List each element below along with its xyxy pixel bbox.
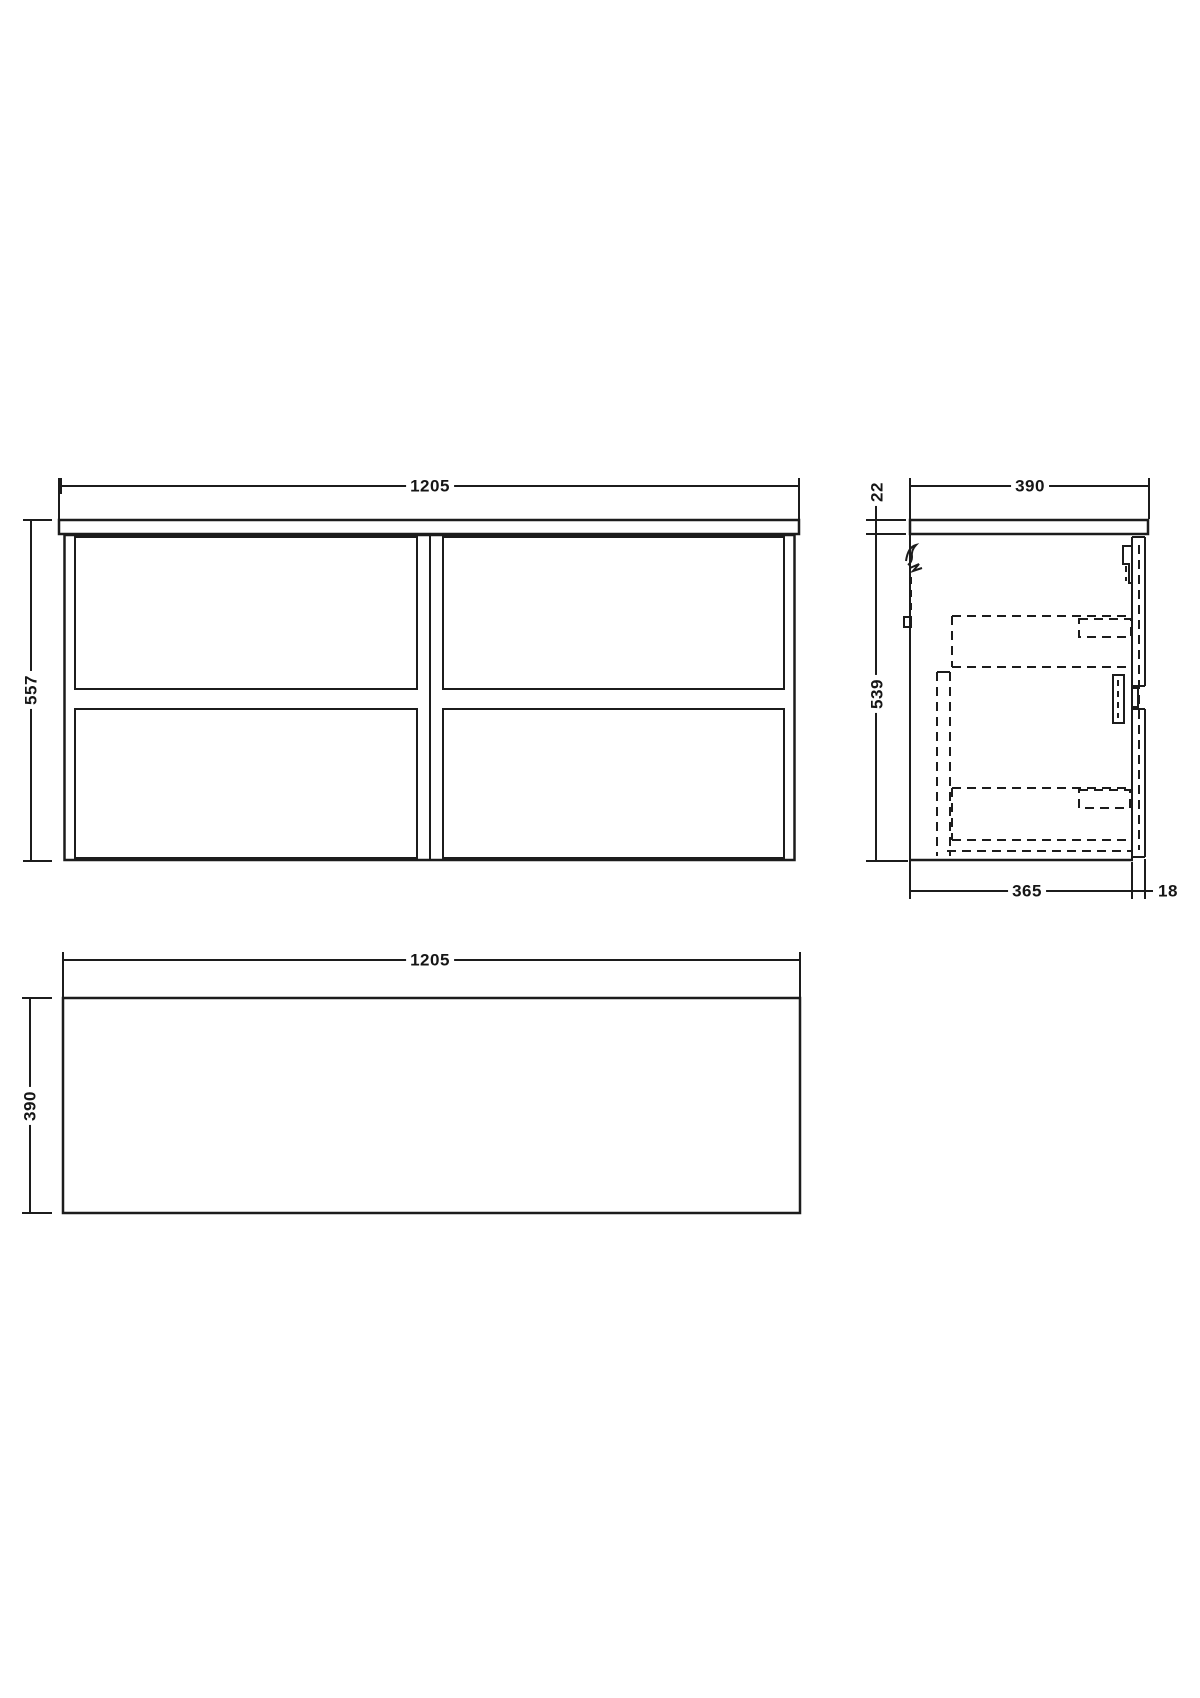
front-width-label: 1205 bbox=[406, 477, 454, 496]
wall-bracket-icon bbox=[904, 545, 922, 627]
front-height-label: 557 bbox=[22, 671, 41, 709]
side-upper-drawer-hidden bbox=[952, 616, 1132, 667]
side-drawer-fronts bbox=[1132, 537, 1145, 857]
plan-depth-label: 390 bbox=[21, 1087, 40, 1125]
side-view bbox=[866, 478, 1153, 899]
plan-view bbox=[22, 952, 800, 1213]
plan-worktop-outline bbox=[63, 998, 800, 1213]
side-top-handle-profile bbox=[1123, 546, 1132, 583]
side-lower-drawer-back-hidden bbox=[937, 672, 950, 856]
front-worktop bbox=[59, 520, 799, 534]
side-depth-label: 390 bbox=[1011, 477, 1049, 496]
side-body-depth-label: 365 bbox=[1008, 882, 1046, 901]
side-carcass bbox=[910, 537, 1133, 860]
front-view bbox=[23, 478, 799, 861]
side-lower-drawer-hidden bbox=[947, 788, 1132, 851]
side-middle-handle-profile bbox=[1113, 675, 1124, 723]
side-front-thickness-label: 18 bbox=[1154, 882, 1182, 901]
plan-width-label: 1205 bbox=[406, 951, 454, 970]
drawing-canvas bbox=[0, 0, 1200, 1698]
side-top-thickness-label: 22 bbox=[868, 478, 887, 506]
side-worktop bbox=[910, 520, 1148, 534]
technical-drawing-page: 1205 557 22 390 539 365 18 1205 390 bbox=[0, 0, 1200, 1698]
side-body-height-label: 539 bbox=[868, 675, 887, 713]
